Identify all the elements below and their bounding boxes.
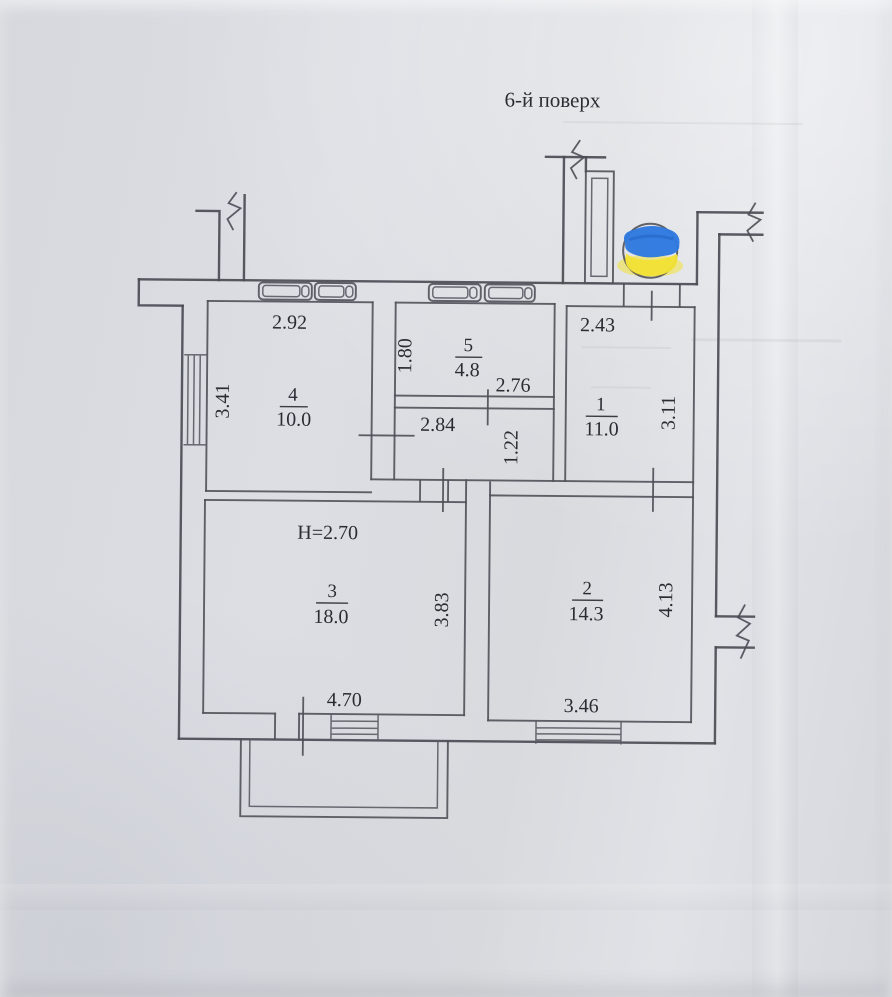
window-symbol-bottom-room3 bbox=[331, 714, 378, 740]
door-opening-mark bbox=[303, 281, 680, 759]
window-symbol-left-room4 bbox=[183, 355, 207, 445]
window-symbol-top-room4 bbox=[259, 282, 356, 300]
room-1-number: 1 bbox=[596, 394, 606, 415]
window-symbol-top-room5 bbox=[429, 284, 535, 302]
dim-hall-width: 2.84 bbox=[420, 414, 455, 436]
room-4-area: 10.0 bbox=[276, 409, 311, 431]
floor-title: 6-й поверх bbox=[504, 87, 601, 112]
dim-room1-height: 3.11 bbox=[658, 396, 680, 430]
scanned-floor-plan-page: 6-й поверх bbox=[0, 0, 892, 997]
room-5-number: 5 bbox=[464, 335, 474, 356]
room-1-area: 11.0 bbox=[584, 418, 618, 440]
balcony-outline bbox=[240, 713, 448, 818]
floor-plan: 6-й поверх bbox=[0, 0, 892, 997]
dim-room5-height: 1.80 bbox=[394, 338, 416, 373]
interior-walls bbox=[203, 301, 695, 722]
ukraine-flag-sticker bbox=[617, 223, 683, 278]
wall-break-icon bbox=[224, 137, 761, 659]
room-2-area: 14.3 bbox=[568, 603, 603, 625]
room-3-number: 3 bbox=[327, 581, 337, 602]
room-2-number: 2 bbox=[582, 578, 592, 599]
entrance-door-symbol bbox=[585, 171, 614, 283]
dim-room4-width: 2.92 bbox=[272, 311, 307, 333]
dim-room3-height: 3.83 bbox=[431, 592, 453, 627]
dim-room4-height: 3.41 bbox=[212, 383, 234, 418]
dim-room2-height: 4.13 bbox=[655, 582, 677, 617]
room-2-label: 2 14.3 bbox=[568, 578, 603, 625]
room-3-label: 3 18.0 bbox=[313, 581, 348, 628]
ceiling-height-label: H=2.70 bbox=[297, 522, 358, 545]
scan-artifact bbox=[561, 121, 843, 390]
room-1-label: 1 11.0 bbox=[584, 394, 619, 440]
dim-hall-height: 1.22 bbox=[500, 430, 522, 465]
room-4-label: 4 10.0 bbox=[276, 385, 311, 431]
dim-room3-width: 4.70 bbox=[327, 689, 362, 711]
dim-room1-width: 2.43 bbox=[580, 314, 615, 336]
dimension-labels: 2.92 3.41 1.80 2.76 2.43 3.11 2.84 1.22 … bbox=[209, 311, 680, 718]
room-5-area: 4.8 bbox=[455, 359, 480, 381]
dim-room2-width: 3.46 bbox=[564, 695, 599, 717]
dim-room5-width: 2.76 bbox=[495, 374, 530, 396]
room-5-label: 5 4.8 bbox=[455, 335, 483, 381]
room-4-number: 4 bbox=[288, 385, 298, 406]
room-3-area: 18.0 bbox=[313, 606, 348, 628]
